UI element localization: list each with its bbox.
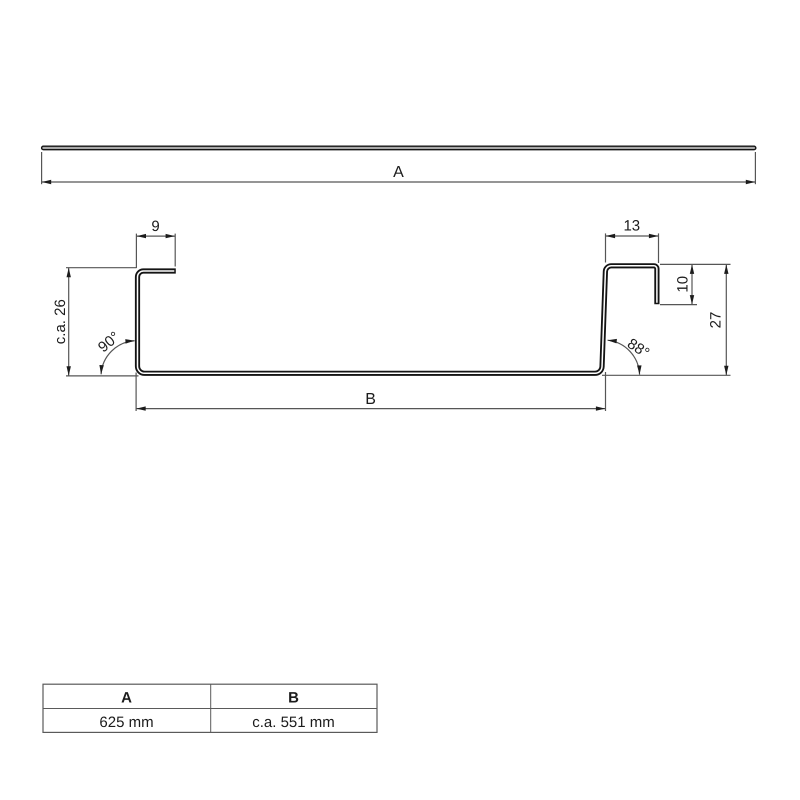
svg-text:10: 10: [675, 276, 692, 293]
svg-text:c.a. 26: c.a. 26: [52, 299, 69, 344]
svg-text:625 mm: 625 mm: [99, 714, 153, 731]
svg-text:13: 13: [623, 218, 640, 235]
svg-text:B: B: [365, 391, 376, 408]
svg-text:c.a. 551 mm: c.a. 551 mm: [252, 714, 335, 731]
svg-text:27: 27: [708, 312, 725, 329]
svg-text:A: A: [121, 690, 132, 707]
svg-text:B: B: [288, 690, 299, 707]
svg-text:9: 9: [151, 218, 159, 235]
svg-text:A: A: [393, 164, 404, 181]
